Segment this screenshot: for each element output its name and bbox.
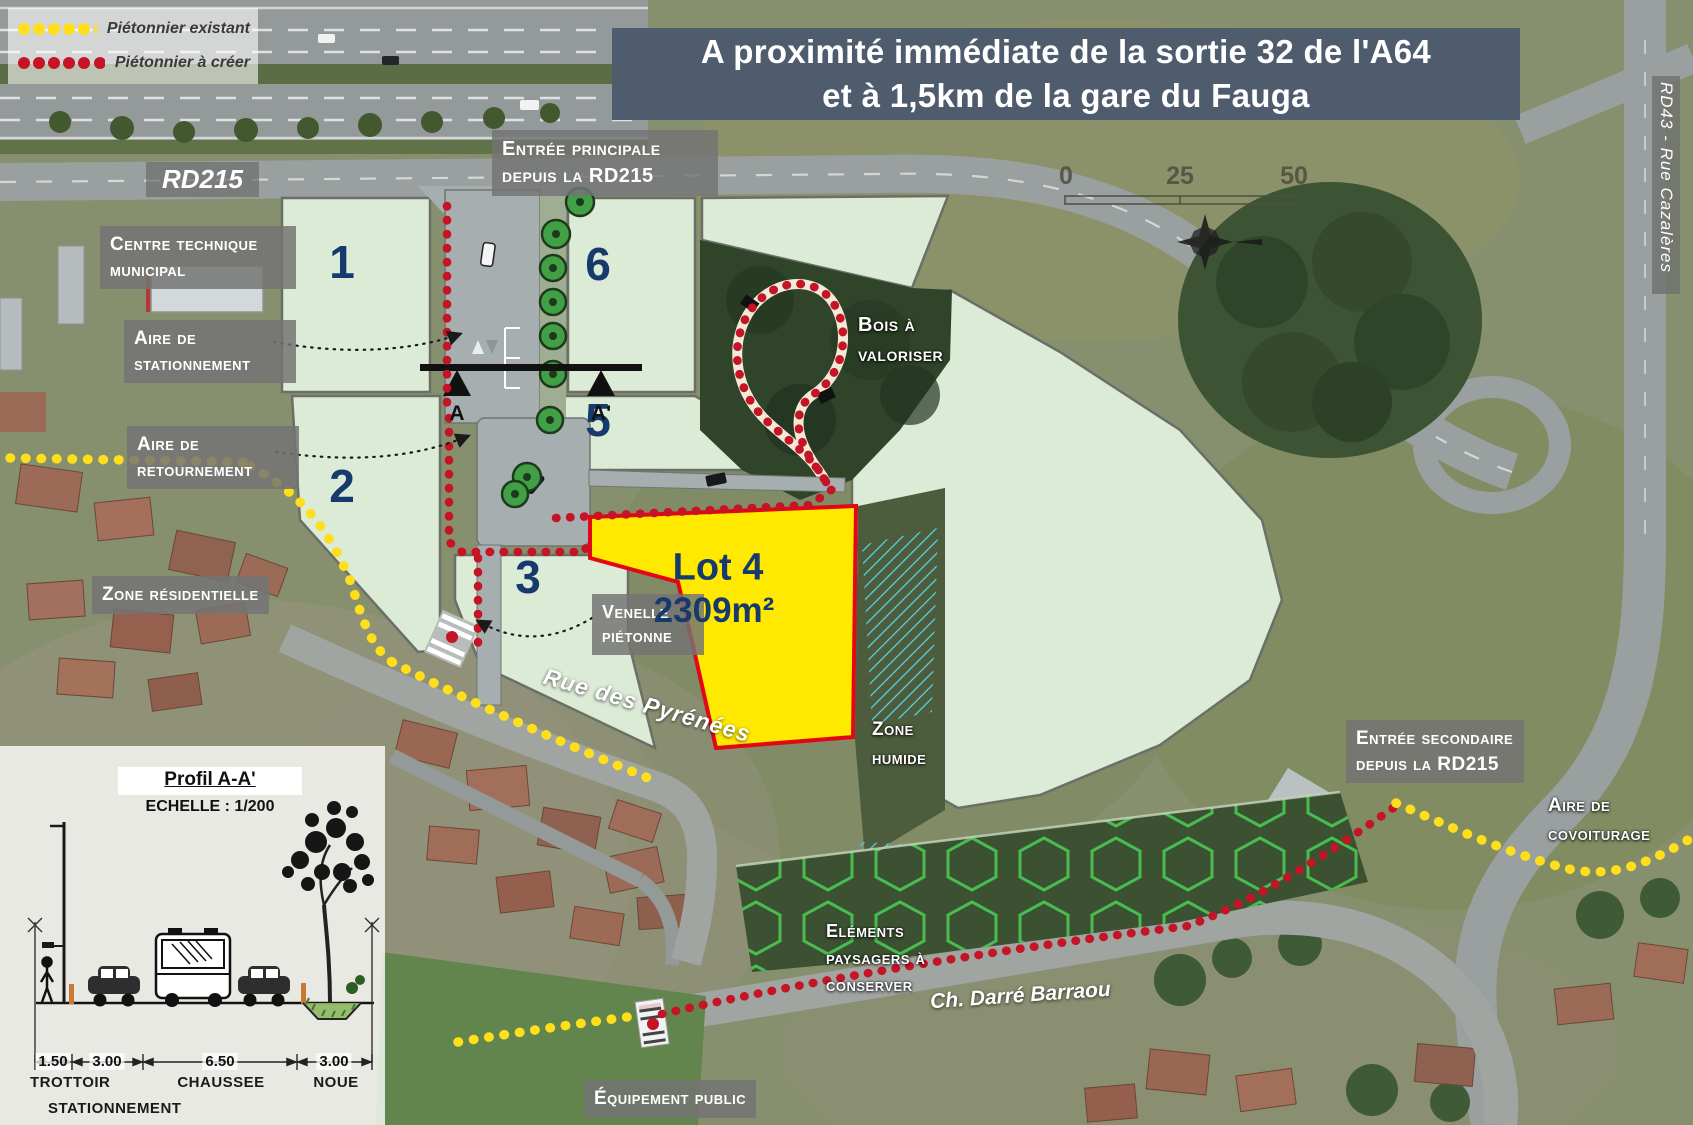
scale-tick-50: 50 (1280, 162, 1308, 191)
legend-create-label: Piétonnier à créer (115, 54, 250, 72)
lot-number-3: 3 (515, 550, 541, 604)
yellow-dots-swatch (16, 21, 97, 37)
crossing-dot-1 (446, 631, 458, 643)
elements-paysagers-label: Eléments paysagers à conserver (826, 918, 966, 999)
bois-valoriser-label: Bois à valoriser (858, 310, 966, 370)
aire-retournement-label: Aire de retournement (127, 426, 299, 489)
equipement-public-label: Équipement public (584, 1080, 756, 1118)
legend-row-existing: Piétonnier existant (16, 20, 250, 38)
dim-chaussee: 6.50 (202, 1053, 237, 1070)
section-marker-a-prime: A' (591, 402, 611, 426)
zone-residentielle-label: Zone résidentielle (92, 576, 269, 614)
tree-grove-right (1178, 182, 1482, 458)
profile-label-stationnement: STATIONNEMENT (48, 1100, 181, 1117)
aire-covoiturage-label: Aire de covoiturage (1548, 792, 1680, 849)
entree-secondaire-label: Entrée secondaire depuis la RD215 (1346, 720, 1524, 783)
profile-echelle: ECHELLE : 1/200 (118, 798, 302, 816)
legend: Piétonnier existant Piétonnier à créer (8, 8, 258, 84)
headline-line2: et à 1,5km de la gare du Fauga (822, 74, 1310, 118)
profile-label-chaussee: CHAUSSEE (177, 1074, 264, 1091)
profile-label-trottoir: TROTTOIR (30, 1074, 110, 1091)
dim-stationnement: 3.00 (89, 1053, 124, 1070)
zone-humide-label: Zone humide (872, 716, 972, 773)
rd43-label: RD43 - Rue Cazalères (1652, 76, 1680, 294)
legend-existing-label: Piétonnier existant (107, 20, 250, 38)
profile-label-noue: NOUE (313, 1074, 358, 1091)
lot-number-6: 6 (585, 237, 611, 291)
lot-number-1: 1 (329, 235, 355, 289)
lot-4-area: 2309m² (654, 591, 775, 631)
lot-6-parcel (568, 198, 695, 392)
dim-noue: 3.00 (316, 1053, 351, 1070)
rd215-label: RD215 (146, 162, 259, 197)
scale-tick-25: 25 (1166, 162, 1194, 191)
headline-banner: A proximité immédiate de la sortie 32 de… (612, 28, 1520, 120)
lot-4-name: Lot 4 (673, 547, 764, 590)
profile-bus (156, 928, 230, 1007)
aire-stationnement-label: Aire de stationnement (124, 320, 296, 383)
lot-number-2: 2 (329, 459, 355, 513)
entree-principale-label: Entrée principale depuis la RD215 (492, 130, 718, 196)
scale-tick-0: 0 (1059, 162, 1073, 191)
headline-line1: A proximité immédiate de la sortie 32 de… (701, 30, 1431, 74)
profile-title: Profil A-A' (118, 769, 302, 791)
section-marker-a: A (449, 402, 464, 426)
lot-1-parcel (282, 198, 430, 392)
dim-trottoir: 1.50 (35, 1053, 70, 1070)
crossing-dot-2 (647, 1018, 659, 1030)
red-dots-swatch (16, 55, 105, 71)
centre-technique-label: Centre technique municipal (100, 226, 296, 289)
site-plan-map: Piétonnier existant Piétonnier à créer A… (0, 0, 1693, 1125)
legend-row-create: Piétonnier à créer (16, 54, 250, 72)
